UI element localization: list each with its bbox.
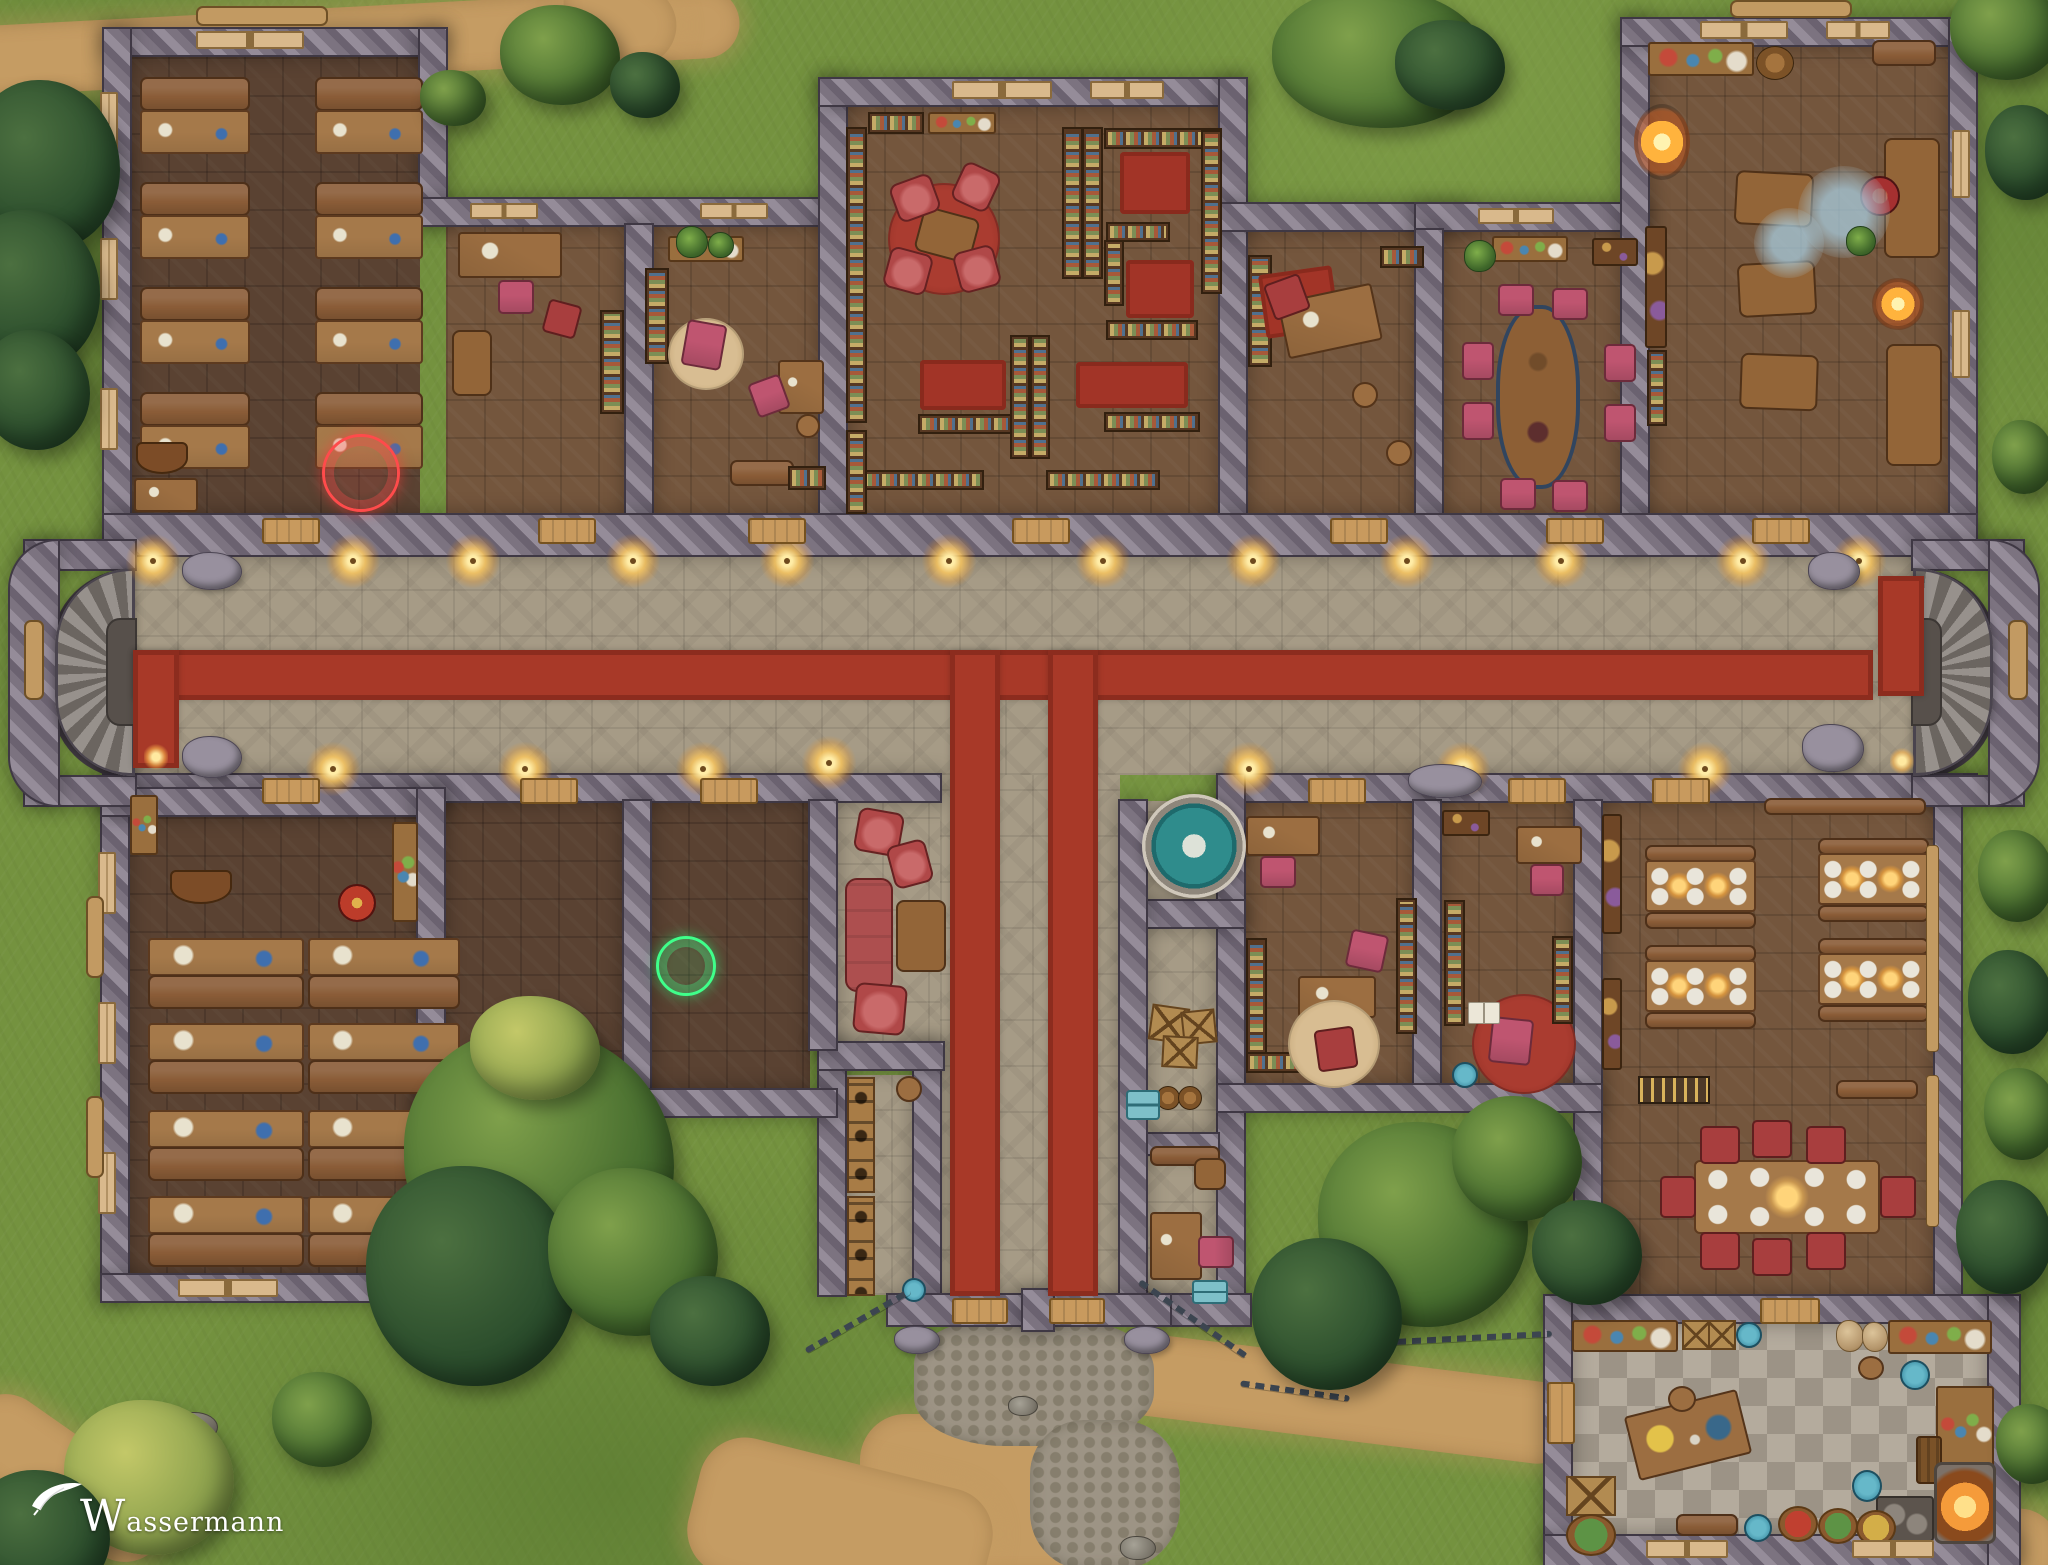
outdoor-bench (2008, 620, 2028, 700)
student-desk (315, 110, 423, 154)
tree-dark (1956, 1180, 2048, 1294)
stool (1858, 1356, 1884, 1380)
dining-table (1818, 953, 1929, 1005)
student-desk (140, 215, 250, 259)
bench (148, 1060, 304, 1094)
candle (144, 744, 168, 770)
candle (1890, 748, 1914, 774)
bookshelf (1647, 350, 1667, 426)
pink-chair (1462, 402, 1494, 440)
red-chair (1700, 1126, 1740, 1164)
tree-mid (420, 70, 486, 126)
statue (1808, 552, 1860, 590)
bench (148, 1147, 304, 1181)
wall-lamp (1226, 534, 1280, 588)
bookshelf-row (860, 470, 984, 490)
pink-chair (498, 280, 534, 314)
wall-lamp (326, 534, 380, 588)
statue (1408, 764, 1482, 798)
door (1547, 1382, 1575, 1444)
counter (1492, 236, 1568, 262)
student-desk (148, 938, 304, 976)
outdoor-bench (196, 6, 328, 26)
wall-lamp (126, 534, 180, 588)
window (1852, 1540, 1934, 1558)
door (538, 518, 596, 544)
barrel (1756, 46, 1794, 80)
bookshelf (645, 268, 669, 364)
pink-chair (1552, 288, 1588, 320)
window (1646, 1540, 1728, 1558)
bookshelf (1062, 127, 1083, 279)
red-chair (1806, 1126, 1846, 1164)
rock (1120, 1536, 1156, 1560)
bench (1836, 1080, 1918, 1099)
window (952, 81, 1052, 99)
pink-chair (1198, 1236, 1234, 1268)
bookshelf (1082, 127, 1103, 279)
crate (1161, 1035, 1199, 1069)
hutch (1602, 814, 1622, 934)
bookshelf (1104, 240, 1124, 306)
table (1739, 353, 1819, 412)
chest (1192, 1280, 1228, 1304)
fire (1634, 104, 1690, 180)
student-desk (148, 1196, 304, 1234)
red-chair (1752, 1120, 1792, 1158)
bookshelf-row (1106, 320, 1198, 340)
tree-dark (1395, 20, 1505, 110)
door (1760, 1298, 1820, 1324)
door (520, 778, 578, 804)
rail (1926, 1075, 1939, 1227)
sofa (845, 878, 893, 992)
table (1194, 1158, 1226, 1190)
window (98, 1002, 116, 1064)
stone-wall (1120, 801, 1146, 1301)
bookshelf-row (1380, 246, 1424, 268)
wall-lamp (1380, 534, 1434, 588)
stone-wall (624, 801, 650, 1090)
window (1478, 208, 1554, 224)
bookshelf (1444, 900, 1465, 1026)
student-desk (315, 320, 423, 364)
rack (1638, 1076, 1710, 1104)
window (1952, 130, 1970, 198)
pink-chair (1604, 344, 1636, 382)
sack (1862, 1322, 1888, 1352)
pink-chair (1552, 480, 1588, 512)
door (262, 778, 320, 804)
counter (1648, 42, 1754, 76)
window (100, 388, 118, 450)
door (1508, 778, 1566, 804)
bench (140, 182, 250, 216)
table (1886, 344, 1942, 466)
door (1546, 518, 1604, 544)
desk (1150, 1212, 1202, 1280)
bench (315, 182, 423, 216)
window (178, 1279, 278, 1297)
counter (392, 822, 418, 922)
red-chair (1313, 1025, 1358, 1072)
stone-wall (420, 29, 446, 225)
pink-chair (1498, 284, 1534, 316)
window (470, 203, 538, 219)
student-desk (308, 938, 460, 976)
window (196, 31, 304, 49)
statue (1124, 1326, 1170, 1354)
red-rug (920, 360, 1006, 410)
carpet (950, 650, 1000, 1296)
bookshelf (1552, 936, 1573, 1024)
stone-wall (819, 1043, 943, 1069)
tree-dark (1968, 950, 2048, 1054)
desk (458, 232, 562, 278)
red-chair (1752, 1238, 1792, 1276)
basket-green (1566, 1514, 1616, 1556)
bookshelf-row (1106, 222, 1170, 242)
pink-chair (1530, 864, 1564, 896)
plant (1464, 240, 1496, 272)
bookshelf (1030, 335, 1050, 459)
student-desk (148, 1023, 304, 1061)
stool (796, 414, 820, 438)
hutch (1602, 978, 1622, 1070)
pot (1736, 1322, 1762, 1348)
door (1752, 518, 1810, 544)
meeting-table (1496, 305, 1580, 489)
barrel (1178, 1086, 1202, 1110)
pot (1900, 1360, 1930, 1390)
statue (182, 552, 242, 590)
outdoor-bench (86, 1096, 104, 1178)
carpet (1048, 650, 1098, 1296)
counter (928, 112, 996, 134)
hutch (1592, 238, 1638, 266)
pink-chair (1604, 404, 1636, 442)
sack (1836, 1320, 1864, 1352)
fire (1872, 278, 1924, 330)
door (1012, 518, 1070, 544)
hearth (1934, 1462, 1996, 1544)
desk (1246, 816, 1320, 856)
tree-mid (1992, 420, 2048, 494)
desk (134, 478, 198, 512)
table (896, 900, 946, 972)
student-desk (308, 1023, 460, 1061)
bench (1645, 912, 1756, 929)
bench (730, 460, 794, 486)
crate (1566, 1476, 1616, 1516)
plant (1846, 226, 1876, 256)
bench (315, 77, 423, 111)
stone-wall (1146, 901, 1244, 927)
door (1652, 778, 1710, 804)
red-chair (1700, 1232, 1740, 1270)
hutch (1645, 226, 1667, 348)
stool (896, 1076, 922, 1102)
stone-wall (1414, 801, 1440, 1085)
dining-table (1645, 860, 1756, 912)
red-rug (1126, 260, 1194, 318)
watermark: Wassermann (26, 1476, 284, 1542)
stone-wall (810, 801, 836, 1049)
basket-green (1818, 1508, 1858, 1544)
bookshelf-row (918, 414, 1012, 434)
door (1330, 518, 1388, 544)
lectern (170, 870, 232, 904)
magic-circle-red (322, 434, 400, 512)
student-desk (140, 320, 250, 364)
bookshelf (846, 127, 867, 423)
red-chair (1806, 1232, 1846, 1270)
stool (1668, 1386, 1696, 1412)
battle-map: Wassermann (0, 0, 2048, 1565)
bookshelf (1396, 898, 1417, 1034)
statue (1802, 724, 1864, 772)
armchair (852, 982, 908, 1036)
tree-mid (1978, 830, 2048, 922)
bench (140, 392, 250, 426)
wall-lamp (802, 736, 856, 790)
basket-red (1778, 1506, 1818, 1542)
pink-chair (1462, 342, 1494, 380)
stone-wall (1950, 19, 1976, 555)
bench (315, 287, 423, 321)
door (1049, 1298, 1105, 1324)
counter (1936, 1386, 1994, 1470)
cobblestone-path (1030, 1420, 1180, 1565)
bookshelf (1201, 130, 1222, 294)
red-rug (1120, 152, 1190, 214)
window (700, 203, 768, 219)
door (262, 518, 320, 544)
tree-dark (610, 52, 680, 118)
student-desk (148, 1110, 304, 1148)
pot (1852, 1470, 1882, 1502)
outdoor-bench (24, 620, 44, 700)
outdoor-bench (1730, 0, 1852, 18)
stool (1386, 440, 1412, 466)
bench (140, 77, 250, 111)
bench (1818, 905, 1929, 922)
wall-lamp (922, 534, 976, 588)
tree-mid (272, 1372, 372, 1467)
bookshelf (1246, 938, 1267, 1054)
bookshelf (600, 310, 624, 414)
bookshelf-row (868, 112, 924, 134)
stone-wall (1416, 230, 1442, 515)
door (1308, 778, 1366, 804)
door (700, 778, 758, 804)
wall-lamp (1076, 534, 1130, 588)
chest (1126, 1090, 1160, 1120)
red-chair (1660, 1176, 1696, 1218)
book (1468, 1002, 1500, 1024)
counter (130, 795, 158, 855)
head-table (1694, 1160, 1880, 1234)
red-chair (1880, 1176, 1916, 1218)
table (452, 330, 492, 396)
dining-table (1645, 960, 1756, 1012)
quill-icon (26, 1476, 86, 1516)
rail (1926, 845, 1939, 1052)
window (1090, 81, 1164, 99)
bench (1645, 1012, 1756, 1029)
bench (308, 975, 460, 1009)
desk (1516, 826, 1582, 864)
stone-wall (820, 79, 846, 515)
watermark-text: Wassermann (80, 1491, 284, 1542)
door (952, 1298, 1008, 1324)
stone-wall (1220, 79, 1246, 515)
pink-chair (1500, 478, 1536, 510)
hutch (1442, 810, 1490, 836)
statue (182, 736, 242, 778)
bookshelf-row (1046, 470, 1160, 490)
door (748, 518, 806, 544)
bench (315, 392, 423, 426)
red-rug (1076, 362, 1188, 408)
bench (1676, 1514, 1738, 1536)
window (1952, 310, 1970, 378)
window (100, 238, 118, 300)
dining-table (1818, 853, 1929, 905)
counter (1888, 1320, 1992, 1354)
stool (1352, 382, 1378, 408)
wall-lamp (1222, 742, 1276, 796)
smoke (1754, 208, 1824, 278)
stone-wall (819, 1043, 845, 1295)
counter (1572, 1320, 1678, 1352)
bench (148, 975, 304, 1009)
rock (1008, 1396, 1038, 1416)
bookshelf (846, 430, 867, 514)
window (1826, 21, 1890, 39)
cubby-shelf (847, 1196, 875, 1296)
bench (1764, 798, 1926, 815)
pool (1142, 794, 1246, 898)
bookshelf (1010, 335, 1030, 459)
plant (708, 232, 734, 258)
cubby-shelf (847, 1077, 875, 1193)
bench (1872, 40, 1936, 66)
magic-circle-green (656, 936, 716, 996)
plant (676, 226, 708, 258)
crate (1708, 1320, 1736, 1350)
bookshelf-row (788, 466, 826, 490)
student-desk (140, 110, 250, 154)
outdoor-bench (86, 896, 104, 978)
student-desk (315, 215, 423, 259)
wall-lamp (446, 534, 500, 588)
pink-chair (1344, 928, 1389, 973)
bench (140, 287, 250, 321)
bookshelf-row (1104, 412, 1200, 432)
lectern (136, 442, 188, 474)
gong (338, 884, 376, 922)
pink-chair (1260, 856, 1296, 888)
window (1700, 21, 1788, 39)
statue (894, 1326, 940, 1354)
bench (148, 1233, 304, 1267)
pink-chair (680, 319, 727, 371)
wall-lamp (606, 534, 660, 588)
carpet (1878, 576, 1924, 696)
pot (1744, 1514, 1772, 1542)
pot (1452, 1062, 1478, 1088)
bench (1818, 1005, 1929, 1022)
crate (1682, 1320, 1710, 1350)
carpet (133, 650, 1873, 700)
